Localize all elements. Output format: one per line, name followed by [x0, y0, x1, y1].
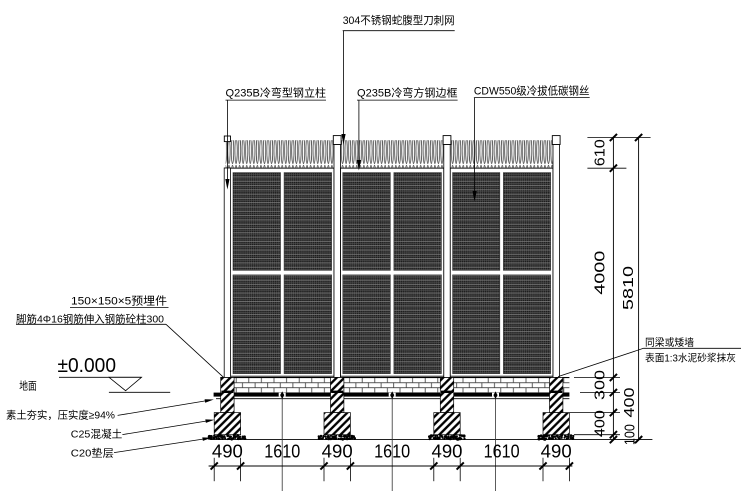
- svg-text:400: 400: [621, 388, 638, 418]
- svg-text:400: 400: [592, 410, 609, 437]
- svg-text:100: 100: [622, 424, 639, 445]
- svg-text:610: 610: [592, 139, 609, 166]
- svg-text:300: 300: [592, 370, 609, 400]
- svg-text:304不锈钢蛇腹型刀刺网: 304不锈钢蛇腹型刀刺网: [343, 13, 455, 27]
- svg-text:490: 490: [541, 441, 572, 461]
- svg-text:C25混凝土: C25混凝土: [71, 428, 123, 441]
- svg-text:C20垫层: C20垫层: [71, 446, 114, 459]
- svg-text:CDW550级冷拔低碳钢丝: CDW550级冷拔低碳钢丝: [474, 84, 590, 98]
- svg-text:脚筋4Φ16钢筋伸入钢筋砼柱300: 脚筋4Φ16钢筋伸入钢筋砼柱300: [16, 312, 164, 325]
- svg-text:Q235B冷弯方钢边框: Q235B冷弯方钢边框: [357, 85, 458, 99]
- svg-text:表面1:3水泥砂浆抹灰: 表面1:3水泥砂浆抹灰: [645, 351, 736, 364]
- svg-text:150×150×5预埋件: 150×150×5预埋件: [71, 294, 167, 307]
- svg-text:5810: 5810: [620, 266, 637, 310]
- svg-text:490: 490: [322, 441, 353, 461]
- svg-text:1610: 1610: [484, 441, 520, 461]
- svg-text:490: 490: [432, 441, 463, 461]
- svg-text:1610: 1610: [264, 441, 300, 461]
- svg-text:同梁或矮墙: 同梁或矮墙: [645, 336, 694, 349]
- svg-text:地面: 地面: [19, 379, 37, 392]
- svg-text:素土夯实，压实度≥94%: 素土夯实，压实度≥94%: [6, 409, 115, 422]
- svg-text:Q235B冷弯型钢立柱: Q235B冷弯型钢立柱: [226, 85, 327, 99]
- svg-text:1610: 1610: [374, 441, 410, 461]
- svg-text:490: 490: [212, 441, 243, 461]
- svg-text:4000: 4000: [592, 251, 609, 295]
- svg-text:±0.000: ±0.000: [58, 355, 117, 377]
